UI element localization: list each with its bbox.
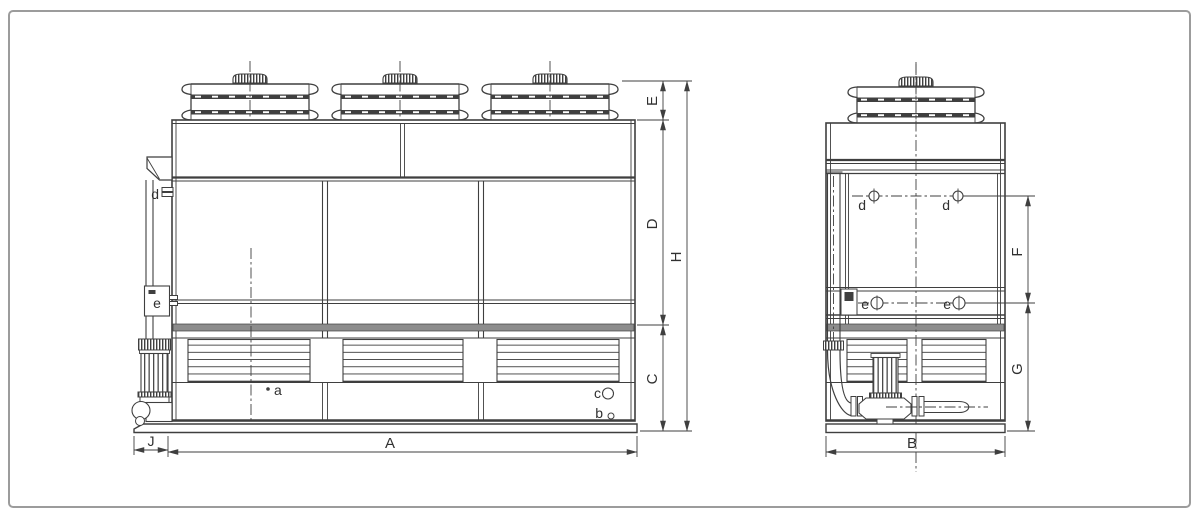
port-label-e1: e	[861, 296, 869, 312]
base-channel	[134, 424, 637, 433]
fan-stack-3	[482, 61, 618, 124]
spray-pump	[132, 339, 172, 426]
dim-label-A: A	[385, 435, 395, 452]
drawing-page: a c b d e E D C H	[0, 0, 1200, 520]
side-casing-band	[827, 324, 1004, 331]
side-view: d d e e	[824, 62, 1036, 472]
port-label-a: a	[274, 382, 282, 398]
port-label-d: d	[151, 186, 159, 202]
dim-label-D: D	[644, 218, 661, 229]
port-label-d1: d	[858, 197, 866, 213]
dim-label-F: F	[1009, 247, 1026, 256]
port-label-b: b	[595, 405, 603, 421]
side-pump-motor	[873, 358, 898, 394]
dim-label-H: H	[668, 252, 685, 263]
drawing-canvas: a c b d e E D C H	[0, 0, 1200, 520]
fan-stack-1	[182, 61, 318, 124]
port-label-c: c	[594, 385, 601, 401]
dim-label-C: C	[644, 373, 661, 384]
port-label-e: e	[153, 295, 161, 311]
fan-stack-2	[332, 61, 468, 124]
dim-label-J: J	[148, 433, 155, 449]
port-label-d2: d	[942, 197, 950, 213]
dim-label-E: E	[644, 96, 661, 106]
dim-label-B: B	[907, 435, 917, 452]
casing-band	[173, 324, 634, 331]
port-label-e2: e	[943, 296, 951, 312]
front-view: a c b d e E D C H	[132, 61, 692, 457]
dim-label-G: G	[1009, 363, 1026, 375]
side-base-channel	[826, 424, 1005, 433]
pump-motor	[141, 354, 168, 393]
drawing-root: a c b d e E D C H	[132, 61, 1035, 472]
